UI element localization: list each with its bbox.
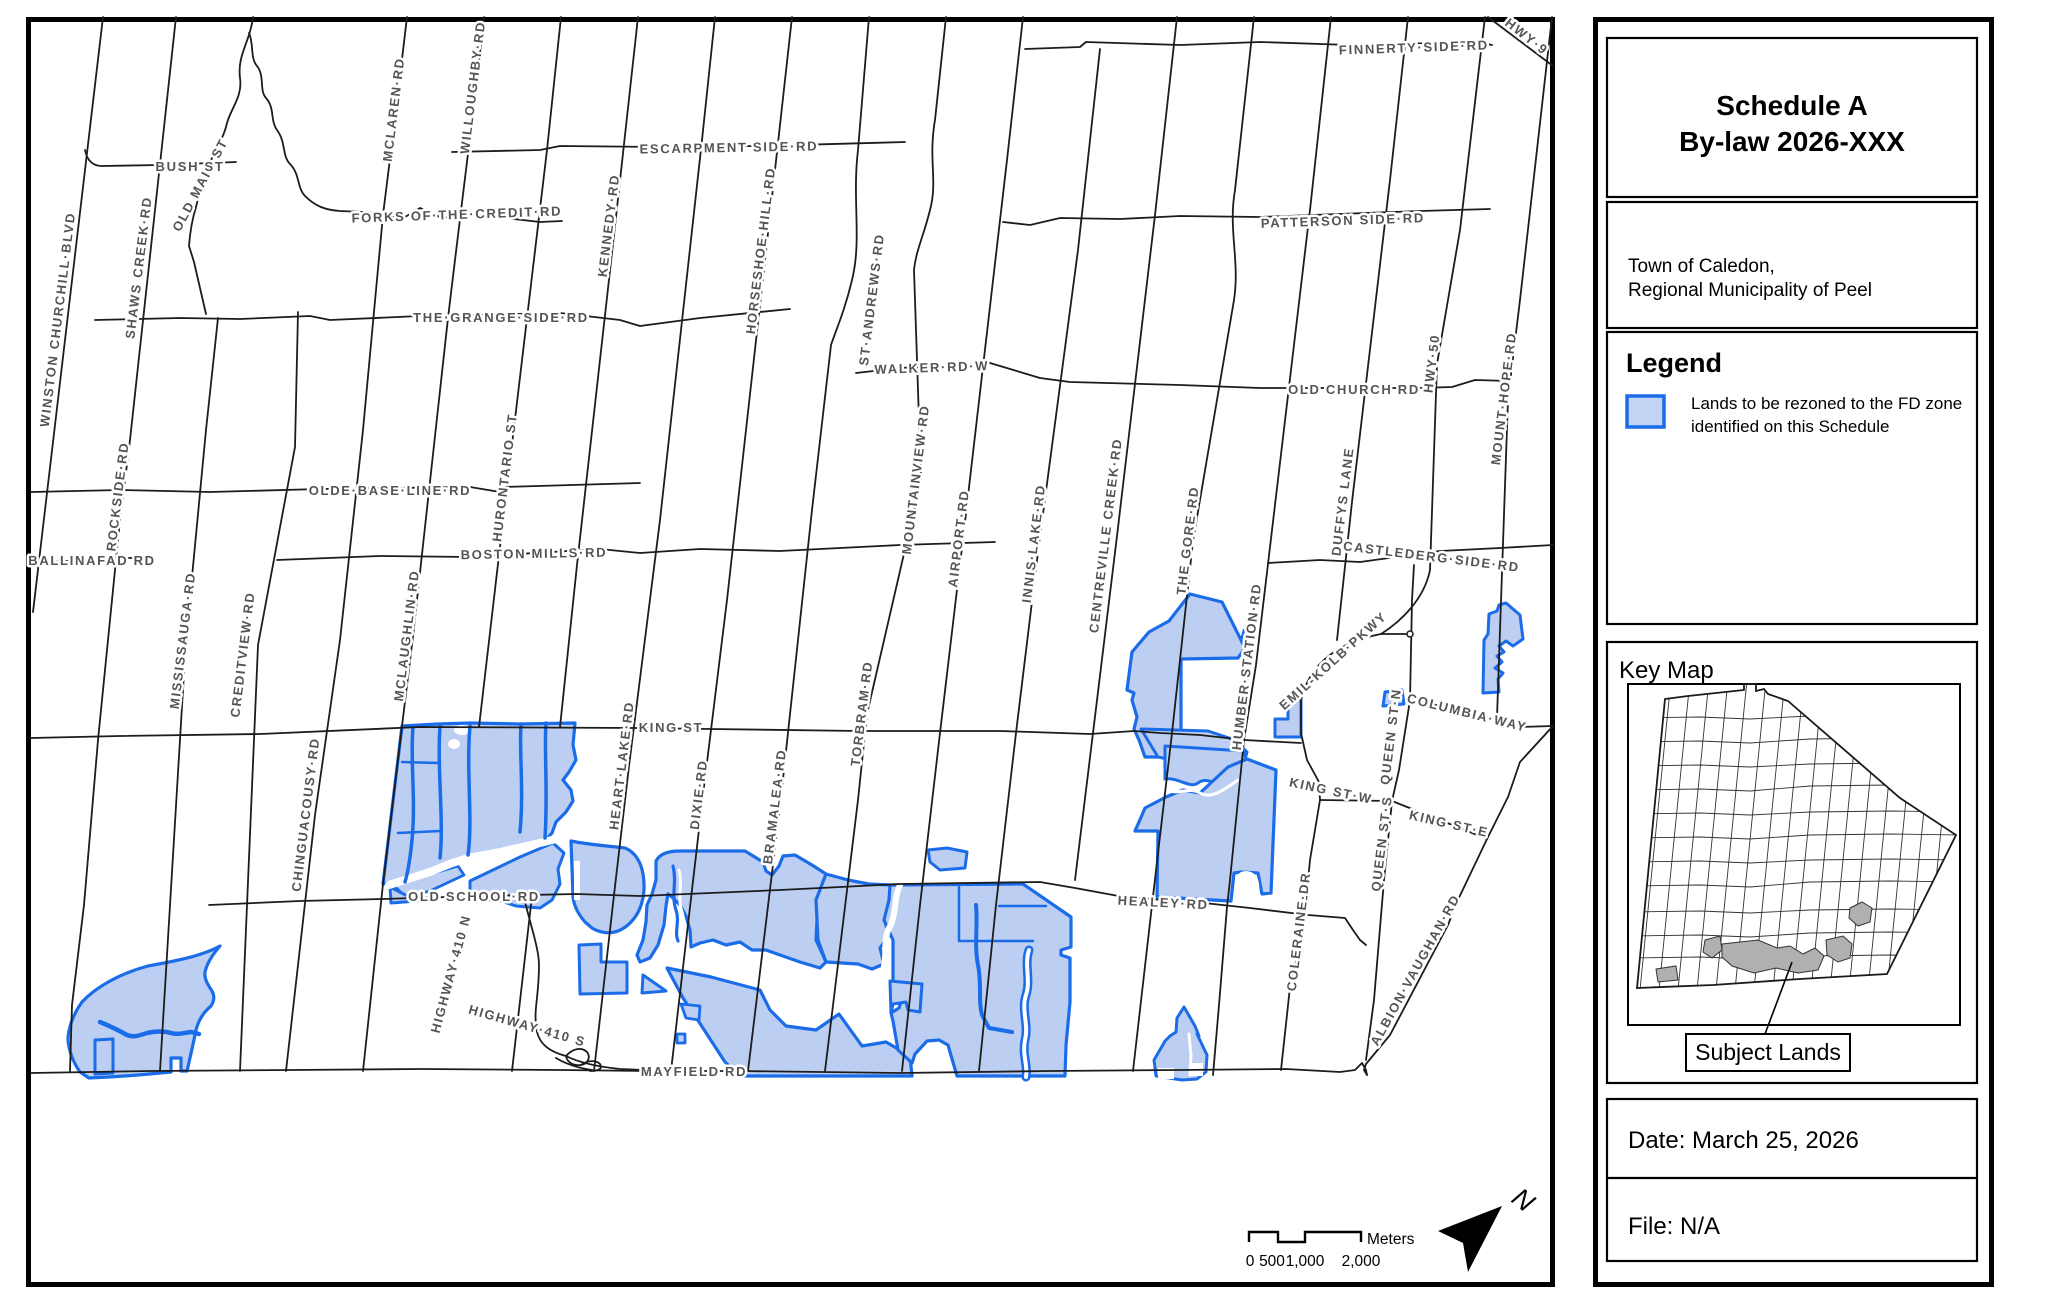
svg-text:identified on this Schedule: identified on this Schedule [1691, 417, 1889, 436]
svg-text:OLDE·BASE·LINE·RD: OLDE·BASE·LINE·RD [309, 483, 472, 498]
svg-text:By-law 2026-XXX: By-law 2026-XXX [1679, 126, 1905, 157]
svg-text:Town of Caledon,: Town of Caledon, [1628, 256, 1775, 277]
svg-text:0: 0 [1246, 1253, 1255, 1270]
svg-text:OLD SCHOOL·RD: OLD SCHOOL·RD [408, 889, 540, 904]
svg-text:MAYFIELD RD: MAYFIELD RD [641, 1064, 747, 1079]
svg-text:Subject Lands: Subject Lands [1695, 1039, 1841, 1065]
svg-text:2,000: 2,000 [1342, 1253, 1381, 1270]
svg-text:Meters: Meters [1367, 1231, 1415, 1248]
svg-text:File: N/A: File: N/A [1628, 1213, 1720, 1240]
svg-text:BALLINAFAD RD: BALLINAFAD RD [28, 553, 156, 568]
svg-text:THE·GRANGE·SIDE·RD: THE·GRANGE·SIDE·RD [413, 310, 589, 325]
svg-text:Key Map: Key Map [1619, 657, 1714, 684]
svg-text:Date: March 25, 2026: Date: March 25, 2026 [1628, 1127, 1859, 1154]
svg-text:BUSH ST: BUSH ST [156, 159, 225, 174]
svg-text:Legend: Legend [1626, 348, 1722, 378]
svg-text:KING ST: KING ST [639, 720, 704, 735]
svg-text:Schedule A: Schedule A [1716, 90, 1867, 121]
svg-text:OLD CHURCH RD: OLD CHURCH RD [1288, 382, 1420, 397]
svg-text:ESCARPMENT SIDE·RD: ESCARPMENT SIDE·RD [639, 138, 818, 156]
svg-text:BOSTON MILLS·RD: BOSTON MILLS·RD [461, 545, 608, 563]
svg-text:1,000: 1,000 [1286, 1253, 1325, 1270]
svg-text:Lands to be rezoned to the FD: Lands to be rezoned to the FD zone [1691, 394, 1962, 413]
svg-text:500: 500 [1259, 1253, 1285, 1270]
svg-text:Regional Municipality of Peel: Regional Municipality of Peel [1628, 280, 1872, 301]
